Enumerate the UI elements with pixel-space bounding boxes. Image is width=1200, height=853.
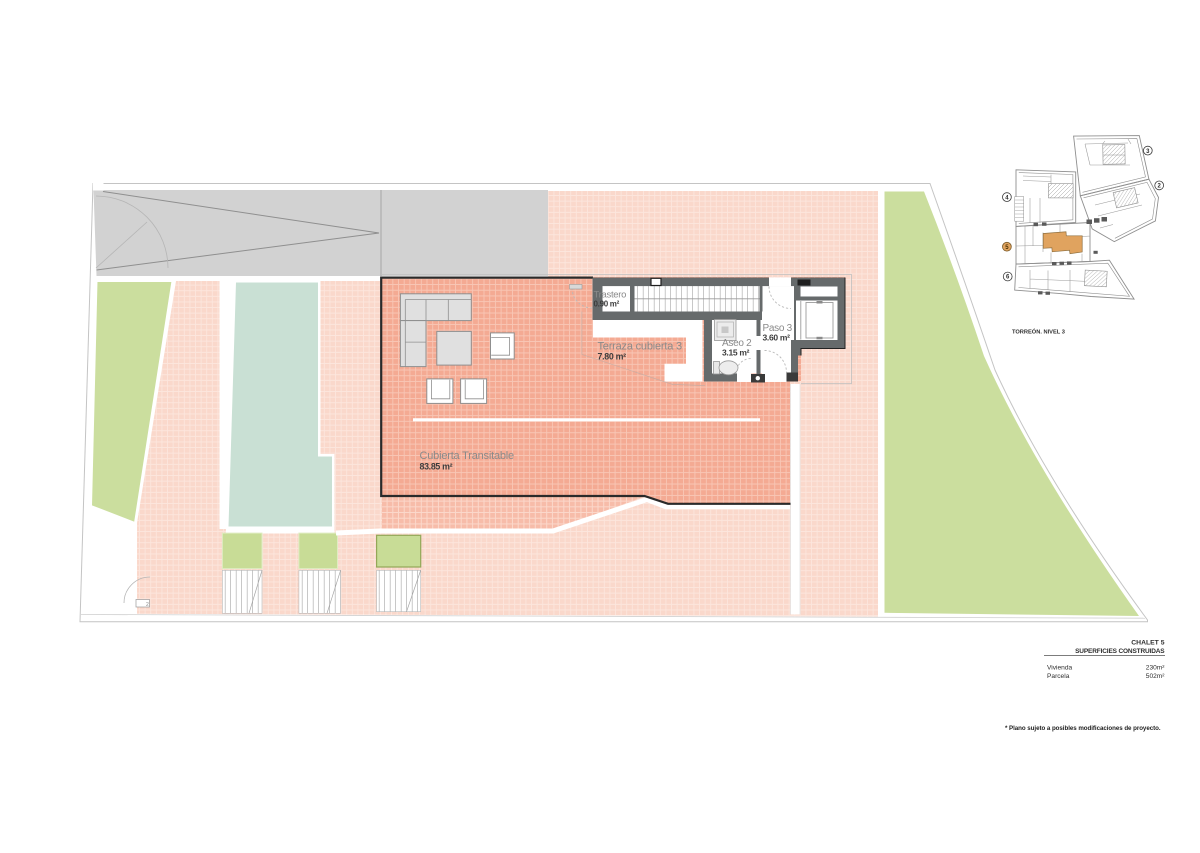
svg-text:Cubierta Transitable: Cubierta Transitable bbox=[420, 450, 515, 462]
svg-text:2: 2 bbox=[146, 602, 149, 608]
svg-text:SUPERFICIES CONSTRUIDAS: SUPERFICIES CONSTRUIDAS bbox=[1075, 648, 1165, 655]
svg-text:230m²: 230m² bbox=[1146, 665, 1165, 672]
svg-text:Vivienda: Vivienda bbox=[1047, 665, 1073, 672]
svg-text:3.15 m²: 3.15 m² bbox=[722, 348, 750, 358]
svg-text:7.80 m²: 7.80 m² bbox=[598, 352, 627, 362]
svg-text:83.85 m²: 83.85 m² bbox=[420, 462, 453, 472]
svg-text:Parcela: Parcela bbox=[1047, 673, 1070, 680]
svg-text:502m²: 502m² bbox=[1146, 673, 1165, 680]
svg-text:3.60 m²: 3.60 m² bbox=[763, 333, 791, 343]
svg-text:0.90 m²: 0.90 m² bbox=[594, 300, 620, 309]
svg-text:CHALET 5: CHALET 5 bbox=[1131, 640, 1164, 647]
svg-text:TORREÓN. NIVEL 3: TORREÓN. NIVEL 3 bbox=[1012, 328, 1065, 336]
svg-text:* Plano sujeto a posibles modi: * Plano sujeto a posibles modificaciones… bbox=[1005, 725, 1161, 732]
